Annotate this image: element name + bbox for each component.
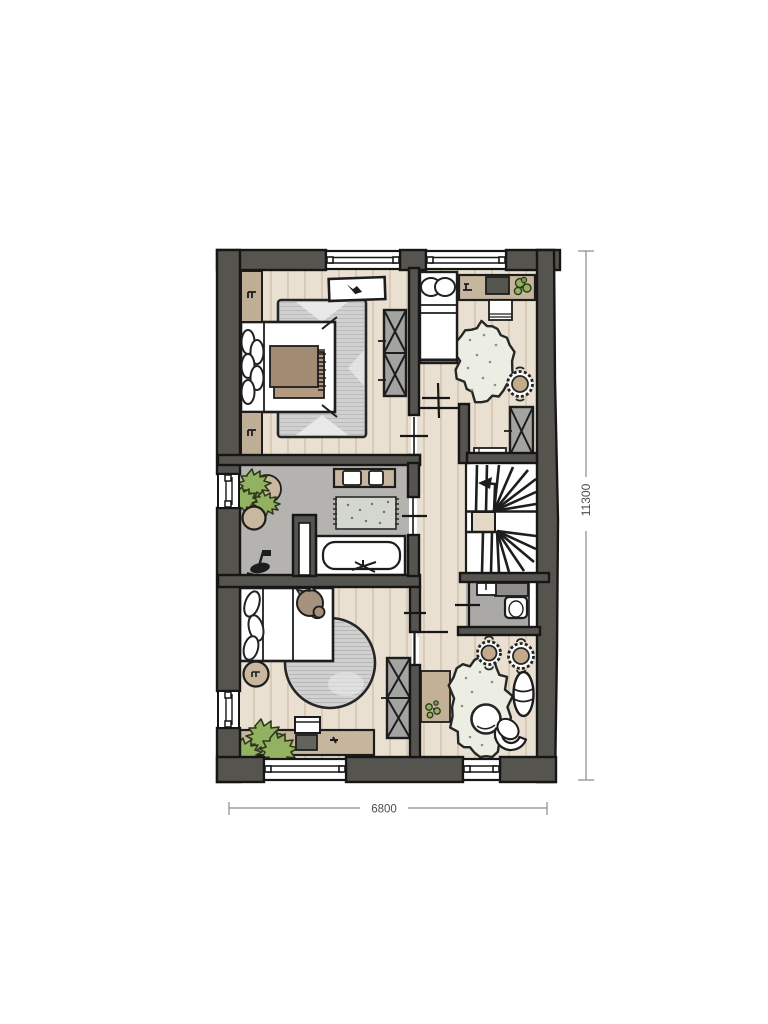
svg-text:11300: 11300: [579, 483, 593, 516]
svg-text:6800: 6800: [371, 804, 397, 816]
